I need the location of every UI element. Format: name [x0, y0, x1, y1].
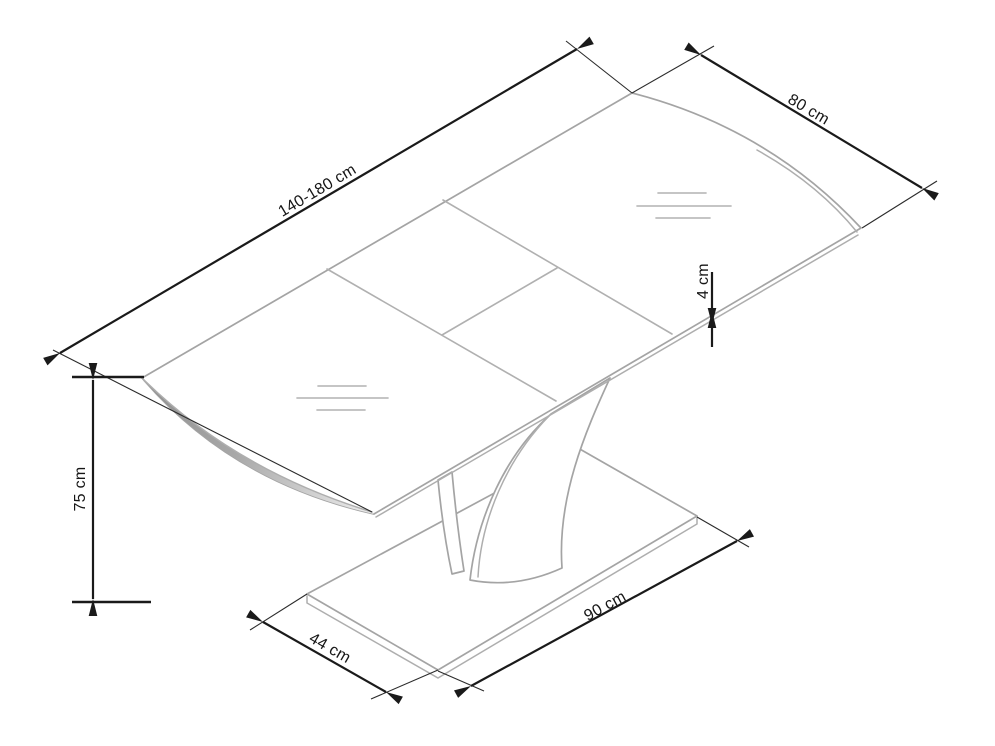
dim-label-table-height: 75 cm: [72, 466, 89, 511]
diagram-canvas: 140-180 cm 80 cm 4 cm 75 cm: [0, 0, 995, 746]
dim-label-tabletop-thickness: 4 cm: [695, 263, 712, 299]
table-dimension-drawing: 140-180 cm 80 cm 4 cm 75 cm: [0, 0, 995, 746]
